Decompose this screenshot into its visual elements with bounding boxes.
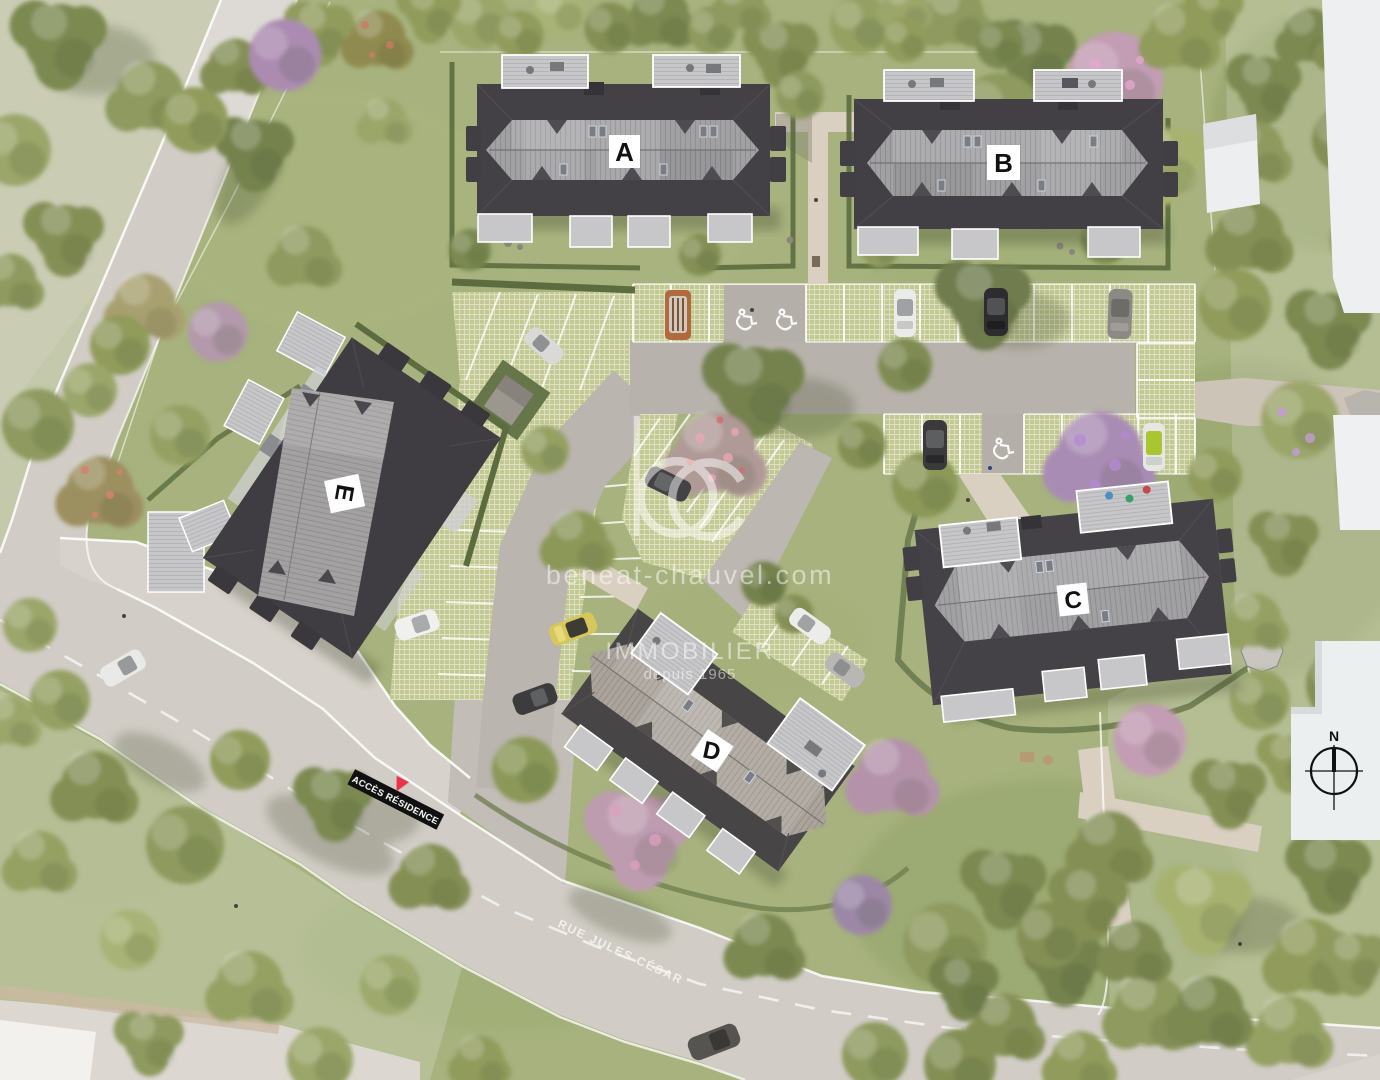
svg-text:B: B [994,148,1013,178]
svg-text:depuis 1965: depuis 1965 [644,666,737,683]
svg-text:N: N [1329,728,1339,744]
svg-text:C: C [1063,586,1083,615]
svg-text:IMMOBILIER: IMMOBILIER [605,638,774,665]
svg-text:beneat-chauvel.com: beneat-chauvel.com [546,560,834,590]
svg-text:A: A [615,137,634,167]
